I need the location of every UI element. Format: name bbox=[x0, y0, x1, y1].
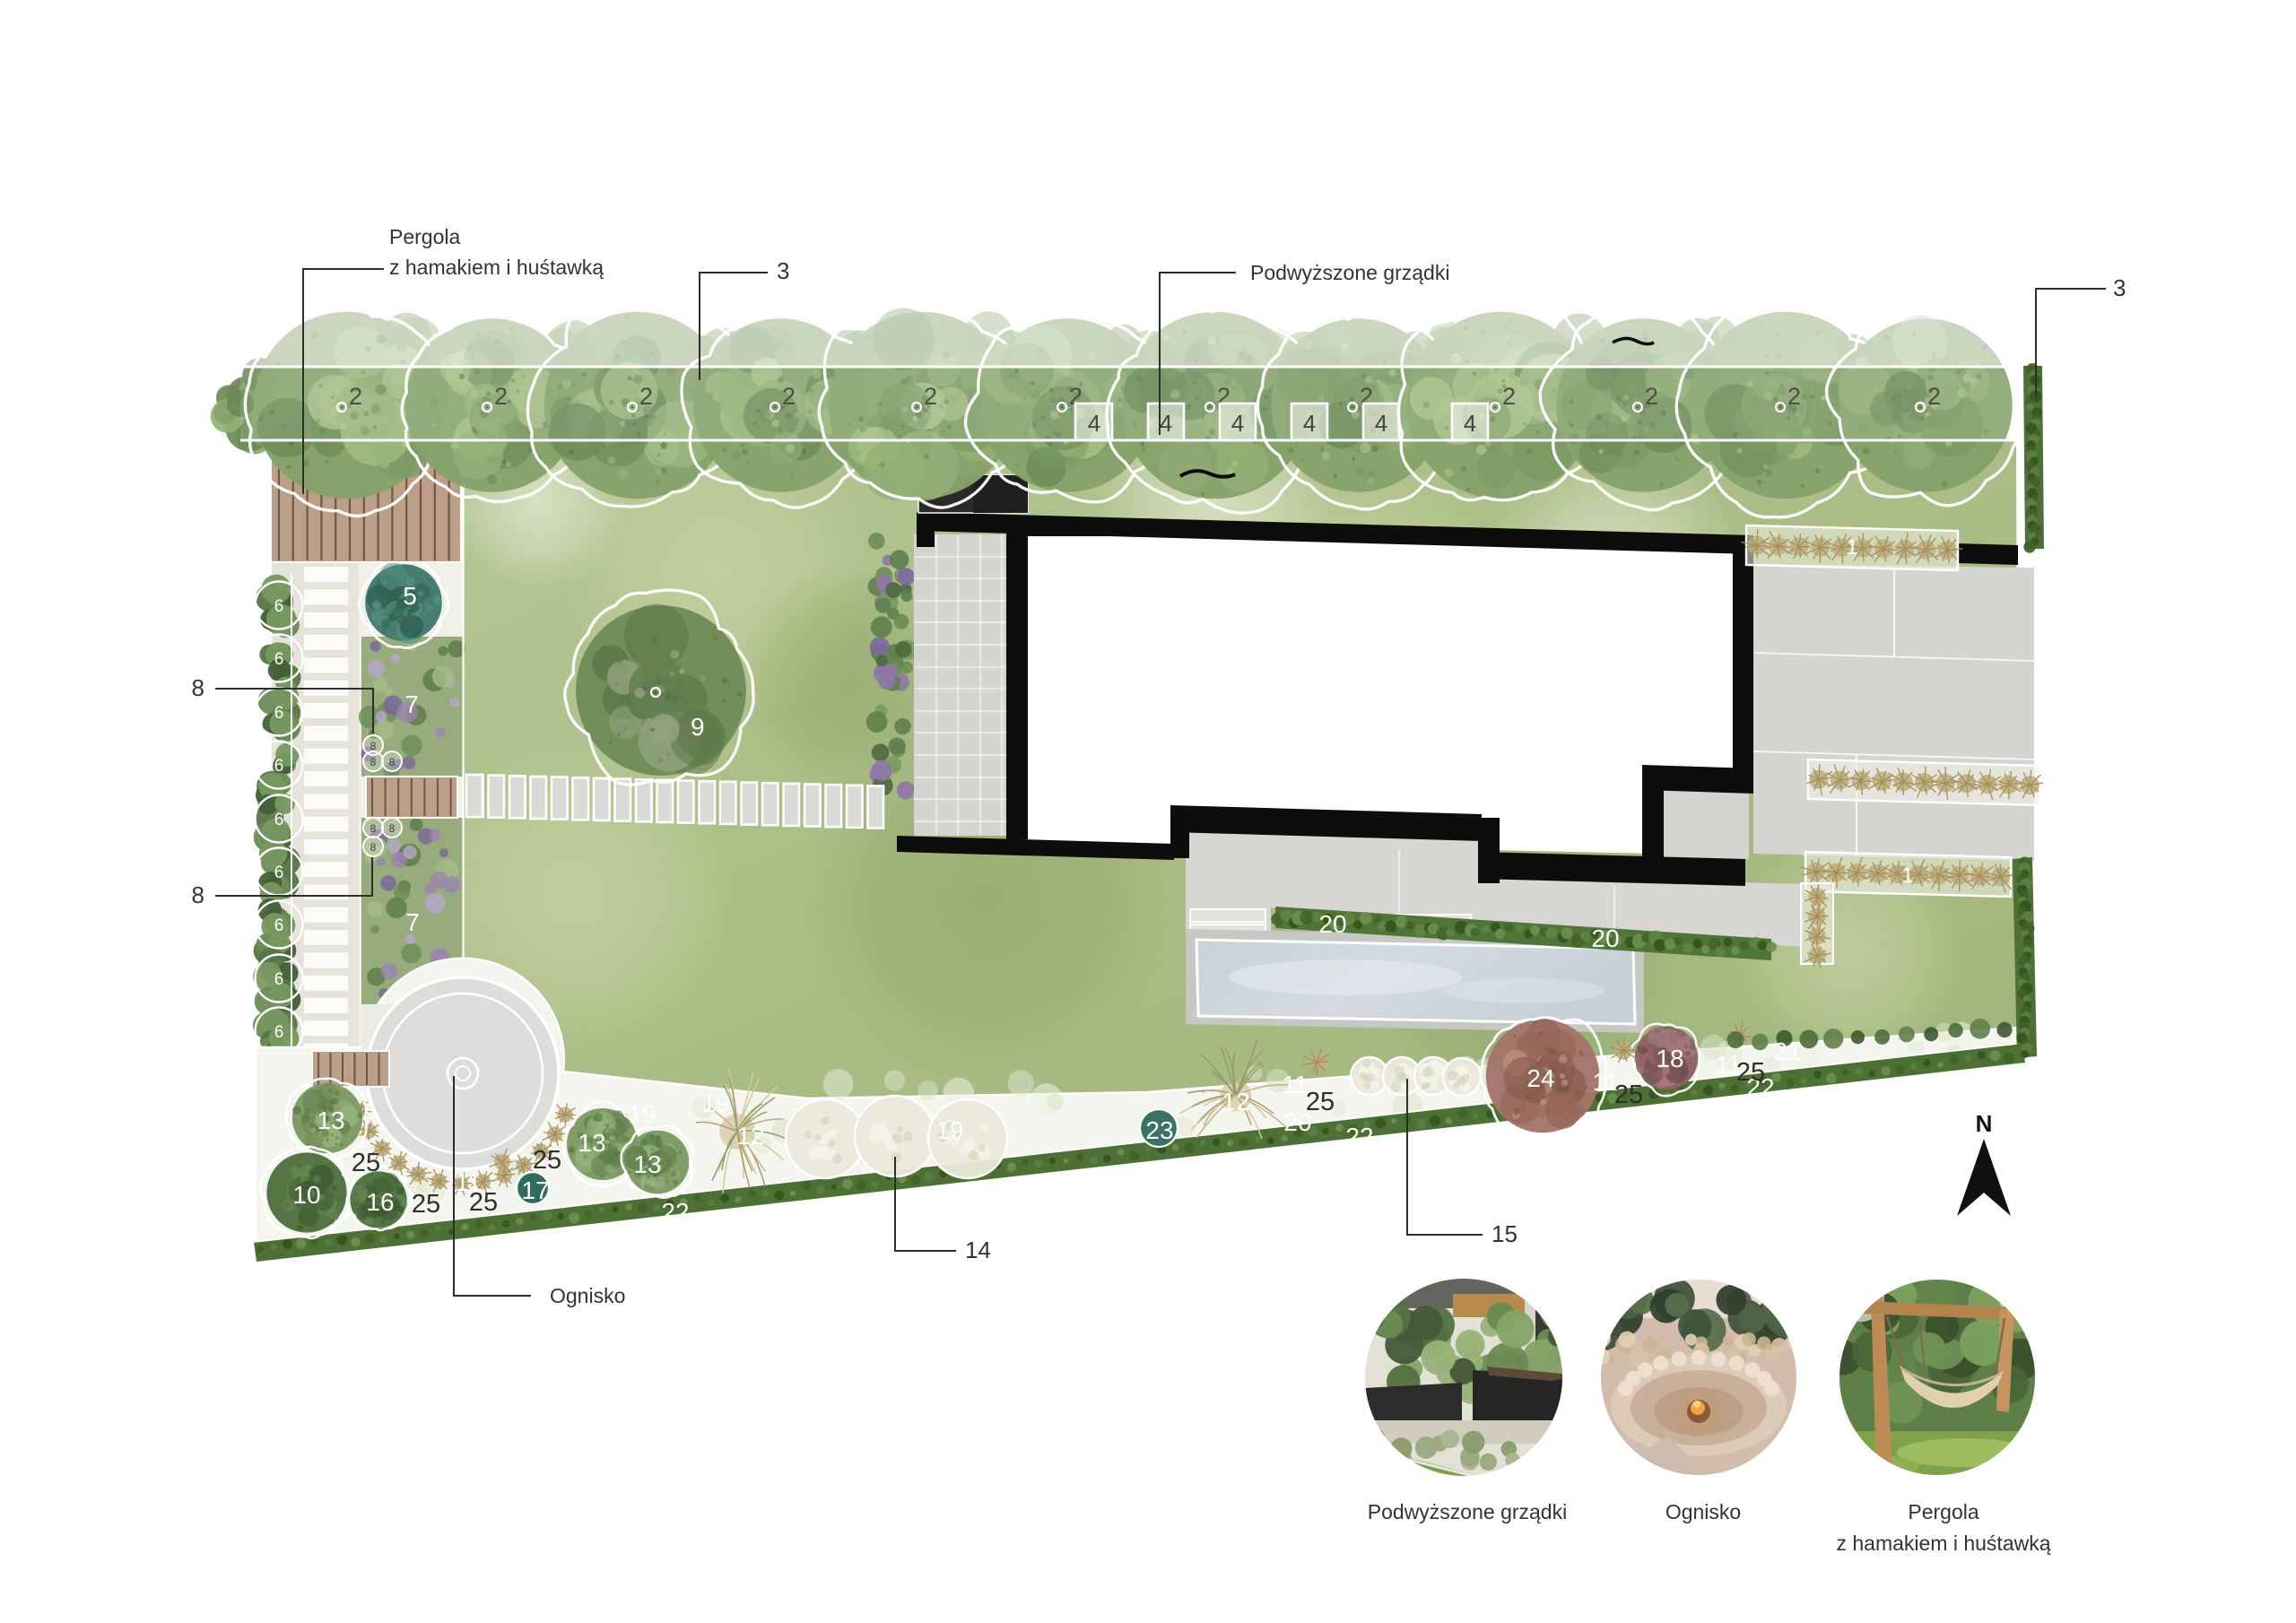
svg-text:z hamakiem i huśtawką: z hamakiem i huśtawką bbox=[389, 256, 604, 279]
svg-text:22: 22 bbox=[661, 1198, 689, 1226]
svg-text:6: 6 bbox=[274, 864, 284, 882]
svg-text:14: 14 bbox=[965, 1237, 991, 1263]
svg-text:25: 25 bbox=[1306, 1088, 1335, 1116]
svg-text:15: 15 bbox=[1492, 1220, 1518, 1247]
svg-text:Pergola: Pergola bbox=[1908, 1500, 1979, 1523]
svg-text:1: 1 bbox=[1846, 535, 1857, 560]
svg-text:11: 11 bbox=[1282, 1071, 1308, 1098]
svg-text:6: 6 bbox=[274, 1023, 284, 1042]
svg-text:22: 22 bbox=[1345, 1123, 1373, 1150]
svg-text:2: 2 bbox=[349, 383, 362, 410]
svg-text:17: 17 bbox=[521, 1176, 549, 1204]
svg-text:19: 19 bbox=[701, 1089, 729, 1117]
svg-text:2: 2 bbox=[494, 383, 508, 410]
svg-text:19: 19 bbox=[628, 1100, 656, 1128]
svg-text:23: 23 bbox=[1145, 1116, 1173, 1144]
svg-text:12: 12 bbox=[1222, 1088, 1249, 1115]
svg-text:3: 3 bbox=[2113, 274, 2126, 301]
svg-text:25: 25 bbox=[469, 1188, 498, 1217]
svg-text:4: 4 bbox=[1375, 410, 1387, 437]
svg-text:13: 13 bbox=[633, 1150, 661, 1178]
svg-text:6: 6 bbox=[274, 757, 284, 776]
svg-text:1: 1 bbox=[1901, 864, 1913, 888]
svg-text:24: 24 bbox=[1526, 1064, 1554, 1092]
svg-text:Podwyższone grządki: Podwyższone grządki bbox=[1250, 261, 1449, 284]
svg-text:8: 8 bbox=[370, 822, 377, 835]
svg-text:12: 12 bbox=[736, 1122, 764, 1150]
svg-text:25: 25 bbox=[533, 1146, 561, 1175]
svg-text:2: 2 bbox=[782, 383, 796, 410]
svg-text:6: 6 bbox=[274, 916, 284, 935]
svg-text:Pergola: Pergola bbox=[389, 225, 460, 248]
svg-text:6: 6 bbox=[274, 704, 284, 723]
svg-text:2: 2 bbox=[1502, 383, 1516, 410]
svg-text:8: 8 bbox=[389, 822, 396, 835]
svg-text:8: 8 bbox=[370, 841, 377, 854]
svg-text:6: 6 bbox=[274, 650, 284, 669]
svg-text:8: 8 bbox=[192, 674, 204, 701]
svg-text:4: 4 bbox=[1160, 410, 1172, 437]
svg-text:20: 20 bbox=[1318, 910, 1346, 938]
svg-text:2: 2 bbox=[1927, 383, 1941, 410]
svg-text:2: 2 bbox=[1645, 383, 1658, 410]
svg-text:10: 10 bbox=[292, 1181, 320, 1209]
svg-text:8: 8 bbox=[370, 740, 377, 752]
svg-text:25: 25 bbox=[1736, 1058, 1765, 1087]
svg-text:20: 20 bbox=[1591, 924, 1619, 952]
svg-text:2: 2 bbox=[639, 383, 653, 410]
svg-text:8: 8 bbox=[389, 756, 396, 768]
svg-text:7: 7 bbox=[405, 908, 420, 936]
svg-text:13: 13 bbox=[317, 1107, 344, 1134]
svg-text:6: 6 bbox=[274, 811, 284, 829]
svg-text:8: 8 bbox=[192, 881, 204, 908]
svg-text:25: 25 bbox=[412, 1190, 440, 1219]
svg-text:Podwyższone grządki: Podwyższone grządki bbox=[1368, 1500, 1567, 1523]
svg-text:5: 5 bbox=[403, 582, 417, 610]
svg-text:8: 8 bbox=[370, 756, 377, 768]
svg-text:6: 6 bbox=[274, 970, 284, 989]
svg-text:4: 4 bbox=[1464, 410, 1476, 437]
svg-text:6: 6 bbox=[274, 597, 284, 616]
svg-text:4: 4 bbox=[1088, 410, 1100, 437]
svg-text:4: 4 bbox=[1231, 410, 1244, 437]
svg-text:19: 19 bbox=[935, 1116, 963, 1144]
svg-text:2: 2 bbox=[1787, 383, 1801, 410]
svg-text:z hamakiem i huśtawką: z hamakiem i huśtawką bbox=[1836, 1532, 2050, 1555]
svg-text:N: N bbox=[1976, 1110, 1993, 1137]
svg-text:13: 13 bbox=[578, 1129, 605, 1157]
svg-text:7: 7 bbox=[404, 690, 419, 718]
svg-text:9: 9 bbox=[691, 713, 705, 741]
svg-text:Ognisko: Ognisko bbox=[550, 1284, 625, 1307]
svg-text:16: 16 bbox=[366, 1188, 394, 1216]
svg-text:25: 25 bbox=[352, 1149, 380, 1177]
svg-text:Ognisko: Ognisko bbox=[1665, 1500, 1741, 1523]
svg-text:2: 2 bbox=[924, 383, 937, 410]
svg-text:18: 18 bbox=[1656, 1045, 1683, 1072]
svg-text:4: 4 bbox=[1303, 410, 1316, 437]
svg-text:21: 21 bbox=[1773, 1037, 1801, 1065]
svg-text:3: 3 bbox=[777, 257, 789, 284]
svg-text:25: 25 bbox=[1614, 1081, 1643, 1109]
